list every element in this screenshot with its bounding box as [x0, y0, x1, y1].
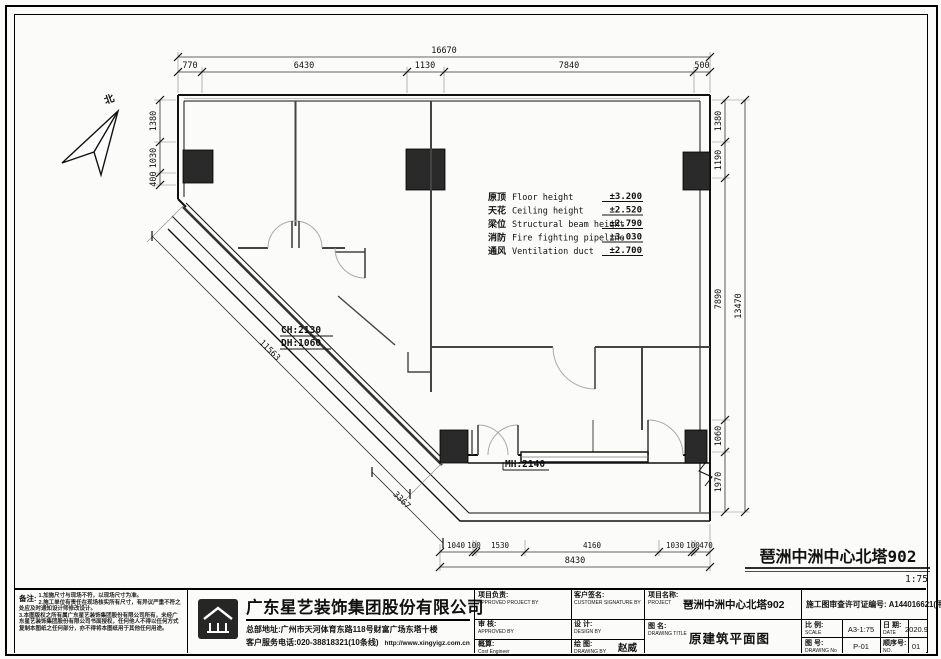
svg-text:±2.700: ±2.700 — [609, 246, 642, 256]
svg-text:天花: 天花 — [488, 205, 506, 217]
approved-by-cell: 审 核: APPROVED BY — [475, 619, 514, 635]
dim-diagonal: 11563 — [257, 338, 282, 363]
label-ch: CH:2130 — [281, 325, 321, 336]
drawing-by-cell: 绘 图: DRAWING BY — [571, 639, 606, 655]
project-name: 琶洲中洲中心北塔902 — [683, 597, 785, 612]
svg-text:通风: 通风 — [488, 245, 506, 257]
sequence-label: 顺序号: NO. — [880, 638, 906, 654]
north-arrow-icon — [62, 111, 118, 175]
dim-bottom-6: 470 — [699, 541, 713, 550]
project-label: 项目名称: PROJECT — [645, 590, 678, 606]
signature-grid: 项目负责: APPROVED PROJECT BY 客户签名: CUSTOMER… — [474, 590, 644, 653]
dim-top-4: 500 — [694, 61, 709, 71]
date-label: 日 期: DATE — [880, 620, 901, 636]
notes-line-2: 2.施工单位有责任在现场核实所有尺寸，有异议严重不符之处应及时通知设计师修改设计… — [19, 600, 183, 613]
dim-top-0: 770 — [182, 61, 197, 71]
floor-plan: 北 — [0, 0, 941, 588]
dim-bottom-4: 1030 — [666, 541, 685, 550]
dim-bottom-0: 1040 — [447, 541, 466, 550]
dim-bottom-5: 100 — [686, 541, 700, 550]
company-phone: 客户服务电话:020-38818321(10条线)http://www.xing… — [246, 637, 470, 648]
dim-top-total: 16670 — [431, 46, 457, 56]
svg-text:Floor height: Floor height — [512, 193, 573, 203]
dimension-lines — [152, 57, 745, 567]
dimension-labels: 16670 770 6430 1130 7840 500 1380 1190 7… — [149, 46, 744, 566]
drawing-by-value: 赵威 — [618, 640, 637, 654]
drawing-no-value: P-01 — [843, 642, 879, 651]
customer-signature-cell: 客户签名: CUSTOMER SIGNATURE BY — [571, 590, 641, 606]
svg-text:Ceiling height: Ceiling height — [512, 207, 584, 217]
notes-cell: 备注: 1.加施尺寸与现场不符，以现场尺寸为准。 2.施工单位有责任在现场核实所… — [15, 590, 187, 653]
dim-right-4: 1970 — [714, 472, 724, 492]
dim-bottom-1: 100 — [467, 541, 481, 550]
dimension-ticks — [152, 53, 749, 571]
notes-label: 备注: — [19, 593, 37, 604]
scale-value: A3-1:75 — [843, 625, 879, 634]
dim-right-2: 7890 — [714, 289, 724, 309]
svg-text:±3.200: ±3.200 — [609, 192, 642, 202]
svg-text:原顶: 原顶 — [488, 192, 506, 203]
title-strip: 备注: 1.加施尺寸与现场不符，以现场尺寸为准。 2.施工单位有责任在现场核实所… — [15, 588, 926, 653]
doors — [268, 221, 683, 455]
dim-bottom-2: 1530 — [491, 541, 510, 550]
dim-top-2: 1130 — [415, 61, 435, 71]
svg-text:±2.790: ±2.790 — [609, 219, 642, 229]
company-name: 广东星艺装饰集团股份有限公司 — [246, 594, 470, 621]
dim-left-2: 400 — [149, 171, 159, 186]
svg-text:±3.030: ±3.030 — [609, 233, 642, 243]
permit-cell: 施工图审查许可证编号: A144016621(甲级) 比 例: SCALE A3… — [801, 590, 926, 653]
project-cell: 项目名称: PROJECT 琶洲中洲中心北塔902 图 名: DRAWING T… — [644, 590, 801, 653]
dim-bottom-total: 8430 — [565, 556, 585, 566]
drawing-title-label: 图 名: DRAWING TITLE — [645, 621, 687, 637]
sequence-value: 01 — [905, 642, 927, 651]
dim-left-0: 1380 — [149, 111, 159, 131]
cost-engineer-cell: 概算: Cost Engineer — [475, 639, 510, 655]
drawing-no-label: 图 号: DRAWING No — [802, 638, 837, 654]
dim-right-1: 1190 — [714, 150, 724, 170]
company-logo-icon — [198, 599, 238, 639]
plan-scale: 1:75 — [905, 574, 928, 585]
dim-right-3: 1060 — [714, 426, 724, 446]
company-website: http://www.xingyigz.com.cn — [385, 640, 470, 647]
company-cell: 广东星艺装饰集团股份有限公司 总部地址:广州市天河体育东路118号财富广场东塔十… — [187, 590, 474, 653]
label-dh: DH:1060 — [281, 338, 321, 349]
height-legend: 原顶 天花 梁位 消防 通风 Floor height Ceiling heig… — [487, 192, 643, 257]
dim-top-3: 7840 — [559, 61, 579, 71]
interior-walls — [238, 101, 710, 455]
svg-text:梁位: 梁位 — [487, 218, 506, 230]
annotation-underlines — [280, 336, 549, 470]
svg-text:±2.520: ±2.520 — [609, 206, 642, 216]
design-by-cell: 设 计: DESIGN BY — [571, 619, 601, 635]
svg-text:消防: 消防 — [488, 232, 506, 244]
dim-right-total: 13470 — [734, 293, 744, 319]
approved-project-cell: 项目负责: APPROVED PROJECT BY — [475, 590, 538, 606]
scale-label: 比 例: SCALE — [802, 620, 823, 636]
dim-bottom-3: 4160 — [583, 541, 602, 550]
svg-text:Ventilation duct: Ventilation duct — [512, 247, 594, 257]
company-address: 总部地址:广州市天河体育东路118号财富广场东塔十楼 — [246, 624, 470, 635]
plan-title: 琶洲中洲中心北塔902 — [760, 547, 917, 566]
dim-right-0: 1380 — [714, 111, 724, 131]
drawing-title-value: 原建筑平面图 — [689, 628, 770, 647]
north-label: 北 — [102, 91, 116, 107]
plan-title-block: 琶洲中洲中心北塔902 1:75 — [745, 547, 930, 585]
drawing-sheet: 北 — [0, 0, 941, 659]
dim-top-1: 6430 — [294, 61, 314, 71]
dim-left-1: 1030 — [149, 148, 159, 168]
license-number: 施工图审查许可证编号: A144016621(甲级) — [806, 599, 941, 610]
label-mh: MH:2140 — [505, 459, 545, 470]
company-phone-number: 客户服务电话:020-38818321(10条线) — [246, 638, 379, 647]
notes-line-3: 3.本图版权之所有属广东星艺装饰集团股份有限公司所有，未经广东星艺装饰集团股份有… — [19, 613, 183, 633]
date-value: 2020.9 — [905, 625, 927, 634]
